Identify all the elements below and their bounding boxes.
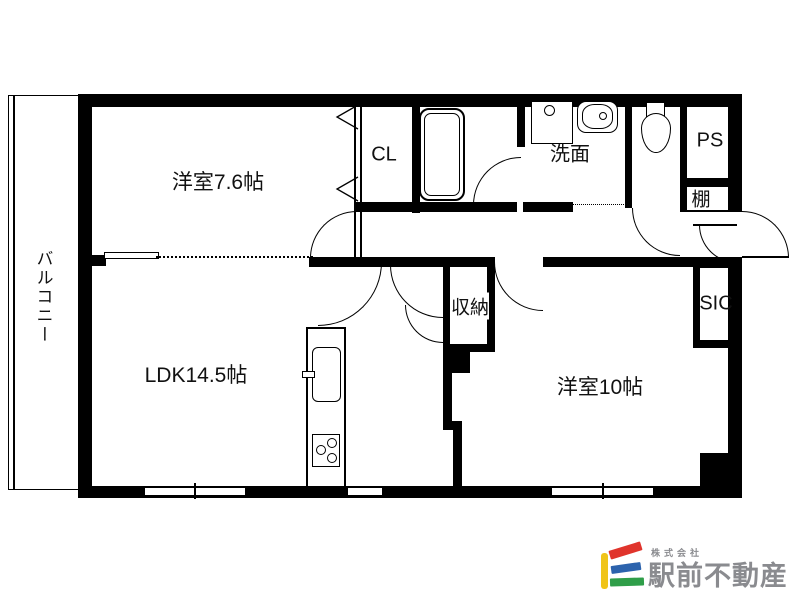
wall-ldk-top-left — [78, 255, 106, 266]
wall-toilet-right — [680, 94, 687, 212]
door-arc-bedroom2 — [494, 262, 543, 311]
wall-bath-right — [517, 94, 525, 147]
washroom-opening-line — [573, 204, 632, 205]
room-label-washroom: 洗面 — [550, 138, 590, 167]
door-leaf-entry-outer — [742, 256, 789, 258]
window-kitchen — [348, 487, 382, 496]
logo-green-bar — [610, 577, 644, 586]
wall-ldk-bed2-lower — [453, 428, 462, 490]
company-logo: 株式会社 駅前不動産 — [598, 545, 798, 595]
window-tick-1 — [194, 483, 196, 499]
kitchen-sink — [312, 347, 341, 402]
room-label-closet: CL — [371, 144, 397, 167]
balcony-inner-line — [13, 96, 15, 489]
wall-washroom-bottom — [523, 202, 573, 212]
wall-ldk-bed2-upper — [443, 352, 452, 428]
door-arc-ldk — [318, 262, 382, 326]
logo-mark — [598, 545, 648, 595]
room-label-shoe-closet: SIC — [699, 293, 732, 316]
door-arc-toilet — [632, 208, 680, 256]
room-label-ldk: LDK14.5帖 — [145, 359, 248, 389]
floorplan-canvas: 洋室7.6帖 CL 洗面 PS 棚 バルコニー LDK14.5帖 収納 SIC … — [0, 0, 800, 600]
vanity-sink — [577, 101, 618, 133]
window-tick-2 — [602, 483, 604, 499]
door-arc-entry-outer — [742, 211, 789, 258]
wall-sic-bottom — [693, 340, 742, 348]
kitchen-faucet — [302, 371, 315, 378]
wall-right-upper — [728, 94, 742, 212]
bifold-door-symbol — [334, 101, 360, 207]
logo-yellow-bar — [601, 553, 608, 589]
toilet-bowl — [641, 113, 671, 153]
closet-door-line-b — [360, 107, 362, 258]
door-arc-storage-lower — [405, 305, 443, 343]
wall-storage-left — [443, 258, 450, 352]
bathtub — [419, 108, 465, 201]
room-label-bedroom2: 洋室10帖 — [557, 371, 643, 401]
gas-stove — [312, 434, 340, 467]
door-arc-bedroom1 — [310, 211, 357, 258]
room-label-balcony: バルコニー — [31, 250, 56, 345]
room-label-storage: 収納 — [451, 293, 489, 320]
logo-blue-bar — [611, 562, 642, 574]
door-arc-bath — [473, 157, 521, 205]
logo-red-bar — [608, 541, 642, 559]
room-label-bedroom1: 洋室7.6帖 — [172, 166, 264, 196]
sliding-door-track — [156, 256, 313, 258]
company-name: 駅前不動産 — [648, 554, 788, 593]
wall-left — [78, 94, 92, 498]
room-label-shelf: 棚 — [691, 185, 710, 212]
pillar-bottom-right — [700, 453, 742, 490]
room-label-pipe-space: PS — [697, 130, 724, 153]
sliding-door-panel — [104, 252, 159, 259]
wall-washroom-toilet — [625, 94, 632, 208]
door-leaf-entry-inner — [693, 224, 737, 226]
wall-top — [78, 94, 742, 107]
